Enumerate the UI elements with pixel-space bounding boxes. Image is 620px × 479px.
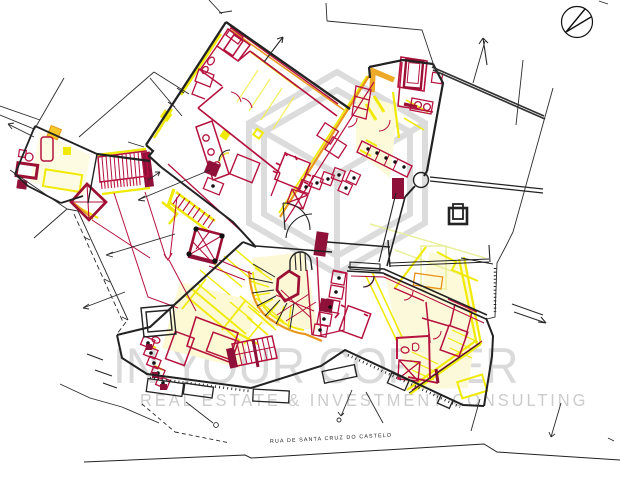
svg-text:REAL ESTATE & INVESTMENT CONSU: REAL ESTATE & INVESTMENT CONSULTING (140, 389, 588, 410)
svg-text:RUA DE SANTA CRUZ DO CA: RUA DE SANTA CRUZ DO CASTELO (270, 433, 393, 445)
